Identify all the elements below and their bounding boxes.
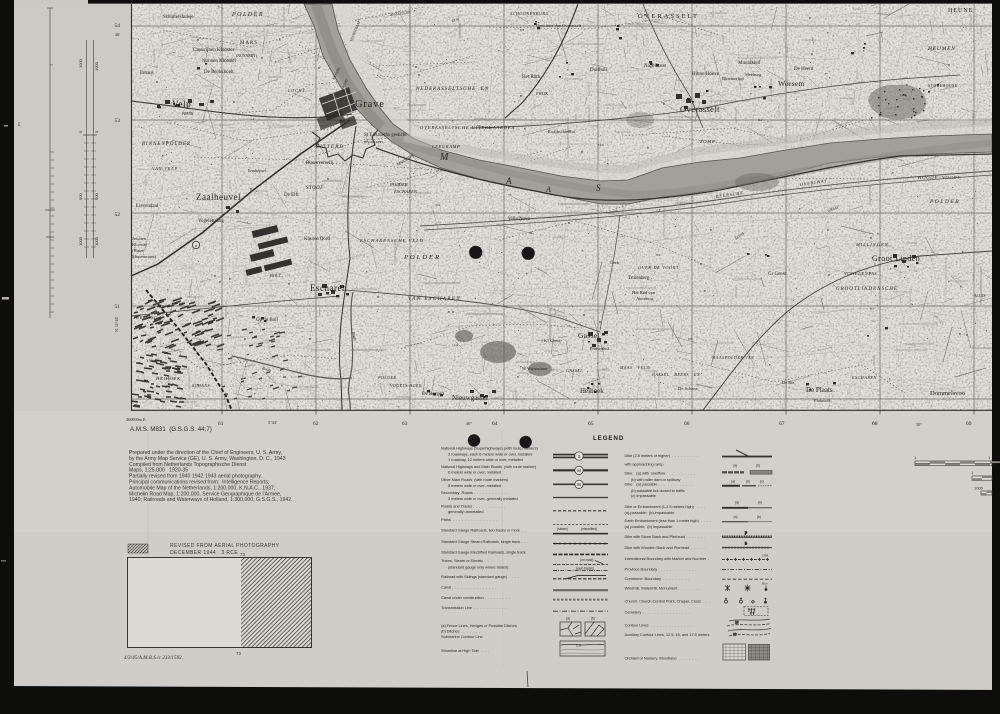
svg-text:Dike or Embankment (1-2.5 mete: Dike or Embankment (1-2.5 meters high) .…: [625, 504, 706, 509]
svg-text:MAAS VELD: MAAS VELD: [619, 365, 650, 370]
svg-text:Het Rad van: Het Rad van: [632, 290, 656, 295]
svg-text:De Bronkhorst: De Bronkhorst: [204, 70, 234, 75]
svg-text:P4: P4: [17, 122, 21, 126]
svg-text:MILLINGEN: MILLINGEN: [855, 242, 889, 247]
svg-text:1000: 1000: [78, 58, 83, 68]
svg-text:Zaalheuvel: Zaalheuvel: [196, 192, 241, 202]
svg-text:Velp: Velp: [172, 100, 191, 110]
svg-text:Church Church Control Point,: Church Church Control Point, Chapel, Cro…: [625, 598, 711, 603]
svg-text:Worsem: Worsem: [778, 79, 805, 88]
svg-text:1 roadway, 12 meters wide or o: 1 roadway, 12 meters wide or over, metal…: [448, 457, 523, 462]
svg-text:STOOF: STOOF: [306, 186, 324, 191]
svg-text:3 meters wide or over, general: 3 meters wide or over, generally metalle…: [448, 496, 518, 501]
svg-text:De Schans: De Schans: [678, 386, 698, 391]
svg-text:Nieuwgassel: Nieuwgassel: [452, 394, 488, 402]
svg-text:73: 73: [240, 552, 245, 557]
svg-text:Kl Geest: Kl Geest: [544, 338, 561, 343]
svg-text:Dike (2.5 meters or higher) .: Dike (2.5 meters or higher) . . . . . . …: [625, 453, 698, 458]
svg-text:Province Boundary . . . .: Province Boundary . . . . . . . . . . . …: [625, 566, 696, 571]
svg-text:SLUIS: SLUIS: [974, 293, 986, 298]
svg-text:S: S: [596, 183, 601, 193]
svg-text:(b) Ditches . . . . .: (b) Ditches . . . . . .: [441, 629, 480, 634]
svg-text:Hihno Hoeve: Hihno Hoeve: [692, 72, 720, 77]
svg-text:Cork: Cork: [610, 260, 620, 265]
svg-text:(b): (b): [591, 617, 595, 621]
svg-text:PRENK: PRENK: [181, 112, 194, 116]
svg-text:De Borgert: De Borgert: [422, 392, 445, 397]
svg-text:Jesuiten: Jesuiten: [132, 236, 147, 241]
svg-text:51: 51: [115, 304, 121, 310]
svg-text:8.8: 8.8: [688, 337, 693, 341]
svg-text:LEGEND: LEGEND: [593, 435, 624, 442]
svg-text:International Boundary with Ma: International Boundary with Marker and N…: [625, 556, 710, 561]
svg-text:Standard Gauge Electrified Rai: Standard Gauge Electrified Railroads, si…: [441, 549, 527, 554]
svg-text:(b): (b): [757, 515, 761, 519]
svg-text:(on road): (on road): [580, 558, 593, 562]
svg-text:(own tracks): (own tracks): [576, 566, 594, 570]
svg-text:Dike with Stone Bank and Pierh: Dike with Stone Bank and Pierhead . . . …: [625, 534, 706, 539]
svg-text:VAN VELP: VAN VELP: [152, 166, 178, 171]
svg-text:Blauwververij: Blauwververij: [306, 161, 333, 166]
svg-text:Dike: (a) passable . . .: Dike: (a) passable . . . . . . . . . . .…: [625, 482, 694, 487]
svg-text:POLDER: POLDER: [389, 182, 408, 187]
svg-text:53: 53: [115, 118, 121, 124]
svg-text:LOCHT: LOCHT: [287, 88, 306, 93]
svg-text:8.3: 8.3: [520, 28, 525, 32]
svg-text:68: 68: [872, 421, 878, 427]
svg-text:1000: 1000: [94, 61, 99, 71]
svg-text:National Highways and Main Roa: National Highways and Main Roads (with r…: [441, 464, 537, 469]
svg-text:Nagelhorst: Nagelhorst: [644, 64, 667, 69]
svg-text:Cemetery . . . . . . .: Cemetery . . . . . . . . . . . . . . . .: [625, 610, 690, 615]
svg-text:61: 61: [218, 421, 224, 427]
svg-text:1000: 1000: [78, 236, 83, 246]
svg-text:OVERASSELTSCHE UITERWAARDEN: OVERASSELTSCHE UITERWAARDEN: [420, 125, 515, 130]
svg-text:54: 54: [115, 23, 121, 29]
svg-text:OVER DE VOORT: OVER DE VOORT: [638, 265, 679, 270]
svg-text:Earth Embankment (less than 1: Earth Embankment (less than 1 meter high…: [625, 518, 711, 523]
svg-text:Transmission Line . . . .: Transmission Line . . . . . . . . . . .: [441, 605, 506, 610]
svg-text:Gr Geest: Gr Geest: [768, 272, 787, 277]
svg-text:(b): (b): [756, 464, 760, 468]
svg-text:Canal . . . . . . . .: Canal . . . . . . . . . . . . . . .: [441, 585, 496, 590]
svg-text:Trurenberg: Trurenberg: [628, 276, 650, 281]
svg-text:Standard Gauge Steam Railroads: Standard Gauge Steam Railroads, single t…: [441, 539, 528, 544]
svg-text:Ewijksche Hof: Ewijksche Hof: [548, 129, 576, 134]
svg-text:Roads and Tracks . . . . .: Roads and Tracks . . . . . . . . . . .: [441, 504, 505, 509]
svg-text:b: b: [745, 542, 747, 546]
svg-text:Capucijnen Klooster: Capucijnen Klooster: [193, 48, 235, 53]
svg-text:Bloemerhof: Bloemerhof: [722, 76, 744, 81]
svg-text:(a) possible; (b) impassable: (a) possible; (b) impassable: [625, 524, 674, 529]
svg-text:p: p: [745, 531, 747, 535]
svg-text:Plukwolf: Plukwolf: [814, 398, 831, 403]
svg-text:73: 73: [236, 651, 241, 656]
svg-text:10: 10: [735, 621, 739, 625]
svg-text:Paths . . . . . . . .: Paths . . . . . . . . . . . . . . .: [441, 517, 497, 522]
svg-text:Escharen: Escharen: [310, 283, 347, 293]
svg-text:Dommelsvoo: Dommelsvoo: [930, 390, 965, 397]
svg-text:(steam): (steam): [557, 527, 568, 531]
svg-text:ESCHARENSCHE VELD: ESCHARENSCHE VELD: [359, 238, 424, 243]
svg-text:2 roadways, each 6 meters wide: 2 roadways, each 6 meters wide or over, …: [448, 451, 532, 456]
svg-text:Orchard or Nursery, Woodland: Orchard or Nursery, Woodland . . . . . .…: [625, 656, 699, 661]
svg-text:A: A: [545, 185, 551, 194]
svg-text:62: 62: [313, 421, 319, 427]
svg-text:De Elft: De Elft: [284, 193, 299, 198]
svg-text:(a) Fence Lines, Hedges or Pos: (a) Fence Lines, Hedges or Possible Ditc…: [441, 623, 517, 628]
svg-text:S: S: [577, 454, 580, 459]
svg-text:4/3/45/A.M.B.S./c 233/1592.: 4/3/45/A.M.B.S./c 233/1592.: [124, 654, 183, 661]
svg-text:A: A: [505, 176, 512, 186]
svg-text:HOOGE VOORT: HOOGE VOORT: [917, 175, 961, 180]
svg-text:(c): (c): [760, 479, 764, 483]
svg-text:Prinsenhof: Prinsenhof: [590, 346, 610, 351]
svg-text:Gassel: Gassel: [578, 331, 600, 340]
svg-text:Vogelenzang: Vogelenzang: [198, 219, 224, 224]
svg-text:Canal under construction . .: Canal under construction . . . . . . . .…: [441, 595, 510, 600]
svg-text:MAASPOLDER VAN: MAASPOLDER VAN: [711, 355, 754, 360]
svg-text:Standard Gauge Railroads, two: Standard Gauge Railroads, two tracks or …: [441, 528, 526, 533]
svg-text:M: M: [577, 468, 581, 473]
svg-text:Kouwe Oord: Kouwe Oord: [304, 237, 330, 242]
svg-text:1000: 1000: [94, 236, 99, 246]
svg-text:Lievendaal: Lievendaal: [136, 204, 159, 209]
svg-text:DECEMBER 1944 3 RCE: DECEMBER 1944 3 RCE: [170, 550, 238, 556]
svg-text:POLDER: POLDER: [403, 254, 441, 261]
svg-text:1000: 1000: [974, 486, 984, 491]
svg-text:63: 63: [402, 421, 408, 427]
svg-text:HEIHOEK: HEIHOEK: [155, 376, 181, 381]
svg-text:OVERASSELT: OVERASSELT: [638, 13, 699, 20]
svg-text:(Huize: (Huize: [132, 248, 144, 253]
svg-text:Contour Lines . . . . .: Contour Lines . . . . . . . . . . . . . …: [625, 623, 692, 628]
svg-text:POLDER: POLDER: [231, 12, 264, 18]
svg-text:Secondary Roads . . . . .: Secondary Roads . . . . . . . . . . . .: [441, 490, 509, 495]
svg-text:Grave: Grave: [355, 99, 385, 110]
svg-text:ZOMP: ZOMP: [700, 139, 715, 144]
svg-text:Groot Linden: Groot Linden: [872, 254, 920, 263]
svg-text:† †: † †: [750, 612, 755, 616]
svg-text:ESCHAREN: ESCHAREN: [393, 189, 418, 194]
svg-text:Sleeburg: Sleeburg: [745, 72, 762, 77]
svg-text:6 meters wide or over, metalle: 6 meters wide or over, metalled: [448, 470, 501, 475]
svg-text:(a): (a): [731, 479, 735, 483]
svg-text:W: W: [577, 482, 582, 487]
svg-text:A.M.S. M831 (G.S.G.S. 44;7): A.M.S. M831 (G.S.G.S. 44;7): [130, 426, 212, 433]
svg-text:(a): (a): [733, 464, 737, 468]
svg-text:Munnikhof: Munnikhof: [738, 61, 761, 66]
svg-text:1794: 1794: [762, 554, 769, 558]
svg-text:46°: 46°: [466, 421, 472, 426]
svg-text:ZITTERD: ZITTERD: [316, 144, 344, 150]
svg-text:67: 67: [779, 421, 785, 427]
svg-text:5.1: 5.1: [250, 117, 255, 121]
svg-text:Windmill, Watermill, Monument: Windmill, Watermill, Monument . . . . . …: [625, 586, 701, 591]
svg-text:Dike: (a) with overflow: Dike: (a) with overflow . . . . . . . . …: [625, 471, 695, 476]
svg-text:Avontuur: Avontuur: [636, 296, 654, 301]
svg-text:VAN ESCHAREN: VAN ESCHAREN: [408, 297, 461, 302]
svg-text:LEEGKAMP: LEEGKAMP: [431, 144, 460, 149]
svg-text:9.6: 9.6: [436, 203, 441, 207]
svg-text:Dike with Wooden Bank and Pier: Dike with Wooden Bank and Pierhead . . .…: [625, 545, 705, 550]
svg-text:M: M: [439, 152, 449, 163]
svg-text:(NUNNERY): (NUNNERY): [236, 54, 258, 58]
svg-text:VOGELS HOEK: VOGELS HOEK: [390, 383, 422, 388]
svg-text:GASSEL: GASSEL: [566, 368, 583, 373]
svg-text:BOLT: BOLT: [270, 273, 281, 278]
svg-text:11.4: 11.4: [452, 343, 458, 347]
svg-text:HEUMEN: HEUMEN: [927, 46, 956, 52]
svg-text:HEUNE: HEUNE: [948, 8, 973, 14]
svg-text:(b): (b): [758, 500, 762, 504]
svg-text:1940; Railroads and Waterways: 1940; Railroads and Waterways of Holland…: [129, 497, 293, 503]
svg-text:Marienwater): Marienwater): [132, 254, 156, 259]
svg-text:De Plaats: De Plaats: [806, 386, 833, 394]
svg-text:Other Main Roads (with route: Other Main Roads (with route markers): [441, 477, 509, 482]
svg-text:500: 500: [78, 193, 83, 200]
svg-text:generally unmetalled: generally unmetalled: [448, 509, 483, 514]
svg-text:Commune Boundary . . . .: Commune Boundary . . . . . . . . .: [625, 576, 689, 581]
svg-text:5 meters wide or over, metalle: 5 meters wide or over, metalled: [448, 483, 501, 488]
svg-text:Overasselt: Overasselt: [680, 104, 720, 114]
svg-text:REVISED FROM AERIAL PHOTOGRAPH: REVISED FROM AERIAL PHOTOGRAPHY: [170, 543, 280, 549]
svg-text:Op de Boll: Op de Boll: [256, 318, 279, 323]
svg-text:65: 65: [588, 421, 594, 427]
svg-text:(c) impassable: (c) impassable: [631, 493, 657, 498]
svg-text:VOGELENPAS: VOGELENPAS: [844, 271, 877, 276]
svg-text:64: 64: [492, 421, 498, 427]
svg-text:De Heerd: De Heerd: [794, 67, 814, 72]
svg-text:St Elisabeths gesticht: St Elisabeths gesticht: [364, 133, 407, 138]
svg-text:(standard gauge only where sta: (standard gauge only where stated): [448, 565, 509, 570]
svg-text:Nonnen Klooster: Nonnen Klooster: [202, 59, 237, 64]
svg-text:(electrified): (electrified): [581, 527, 597, 531]
svg-text:SCHANS: SCHANS: [192, 383, 210, 388]
svg-text:(a): (a): [734, 515, 738, 519]
svg-text:1: 1: [49, 64, 54, 66]
svg-text:500: 500: [94, 193, 99, 200]
svg-text:Auxiliary Contour Lines, 12.5,: Auxiliary Contour Lines, 12.5, 15, and 1…: [625, 632, 710, 637]
svg-text:Railroad with Sidings (standar: Railroad with Sidings (standard gauge) .…: [441, 574, 519, 579]
svg-text:460000m E.: 460000m E.: [126, 417, 146, 422]
svg-text:Villa Nova: Villa Nova: [508, 217, 531, 222]
svg-text:with approaching ramp: with approaching ramp: [625, 462, 665, 467]
svg-text:Het Roth: Het Roth: [522, 75, 541, 80]
svg-text:STOREHOUSE: STOREHOUSE: [928, 84, 958, 88]
svg-text:69: 69: [966, 421, 972, 427]
svg-text:SCHOONENBURG: SCHOONENBURG: [510, 11, 549, 16]
svg-text:EWIJK: EWIJK: [535, 91, 548, 96]
svg-text:W Wijnruimer: W Wijnruimer: [522, 366, 548, 371]
svg-text:5°44': 5°44': [268, 420, 277, 425]
svg-text:Schuttershuisje: Schuttershuisje: [163, 15, 194, 20]
svg-text:Gem huis van Overasselt: Gem huis van Overasselt: [536, 23, 582, 28]
svg-text:(a): (a): [735, 500, 739, 504]
svg-text:Duifhuis: Duifhuis: [590, 68, 608, 73]
svg-text:8.1: 8.1: [758, 118, 763, 122]
svg-text:12.5: 12.5: [598, 143, 604, 147]
svg-text:MARS: MARS: [240, 41, 258, 46]
svg-text:Trams, Steam or Electric . .: Trams, Steam or Electric . . . . . .: [441, 558, 501, 563]
svg-text:GASSEL BEERS EN: GASSEL BEERS EN: [652, 372, 700, 377]
svg-text:50°: 50°: [916, 422, 922, 427]
svg-text:Shoreline at High Tide . .: Shoreline at High Tide . . .: [441, 648, 489, 653]
svg-text:Klooster: Klooster: [132, 242, 148, 247]
svg-text:12.6: 12.6: [900, 93, 906, 97]
svg-text:52: 52: [115, 212, 121, 218]
svg-text:BEGRAAFPL: BEGRAAFPL: [364, 140, 384, 144]
svg-text:(b): (b): [746, 479, 750, 483]
svg-text:66: 66: [684, 421, 690, 427]
svg-text:De Rie: De Rie: [782, 380, 794, 385]
svg-text:'t Vonje: 't Vonje: [146, 358, 159, 363]
svg-text:8.7: 8.7: [870, 307, 875, 311]
svg-text:(a): (a): [566, 617, 570, 621]
svg-text:8.9: 8.9: [656, 253, 661, 257]
svg-text:10: 10: [733, 633, 737, 637]
svg-text:BINNENPOLDER: BINNENPOLDER: [142, 142, 191, 147]
svg-text:POLDER: POLDER: [377, 375, 396, 380]
svg-text:Heihoek: Heihoek: [580, 387, 604, 395]
svg-text:2.5: 2.5: [576, 643, 581, 647]
svg-text:Submarine Contour Line: Submarine Contour Line: [441, 634, 484, 639]
svg-text:Eendenpoel: Eendenpoel: [247, 169, 266, 173]
svg-text:Emaus: Emaus: [140, 71, 154, 76]
svg-text:(a)-passable; (b)-impassable: (a)-passable; (b)-impassable: [625, 510, 676, 515]
svg-text:Mon: Mon: [762, 581, 768, 585]
svg-text:TWEELING: TWEELING: [133, 315, 157, 320]
svg-text:POLDER: POLDER: [929, 199, 960, 205]
svg-text:N. 51°44': N. 51°44': [114, 317, 119, 332]
svg-text:46': 46': [115, 32, 120, 37]
svg-text:ESCHAREN: ESCHAREN: [851, 375, 877, 380]
svg-text:NEDERASSELTSCHE EN: NEDERASSELTSCHE EN: [415, 87, 489, 92]
svg-text:GROOTLINDENSCHE: GROOTLINDENSCHE: [836, 287, 898, 292]
